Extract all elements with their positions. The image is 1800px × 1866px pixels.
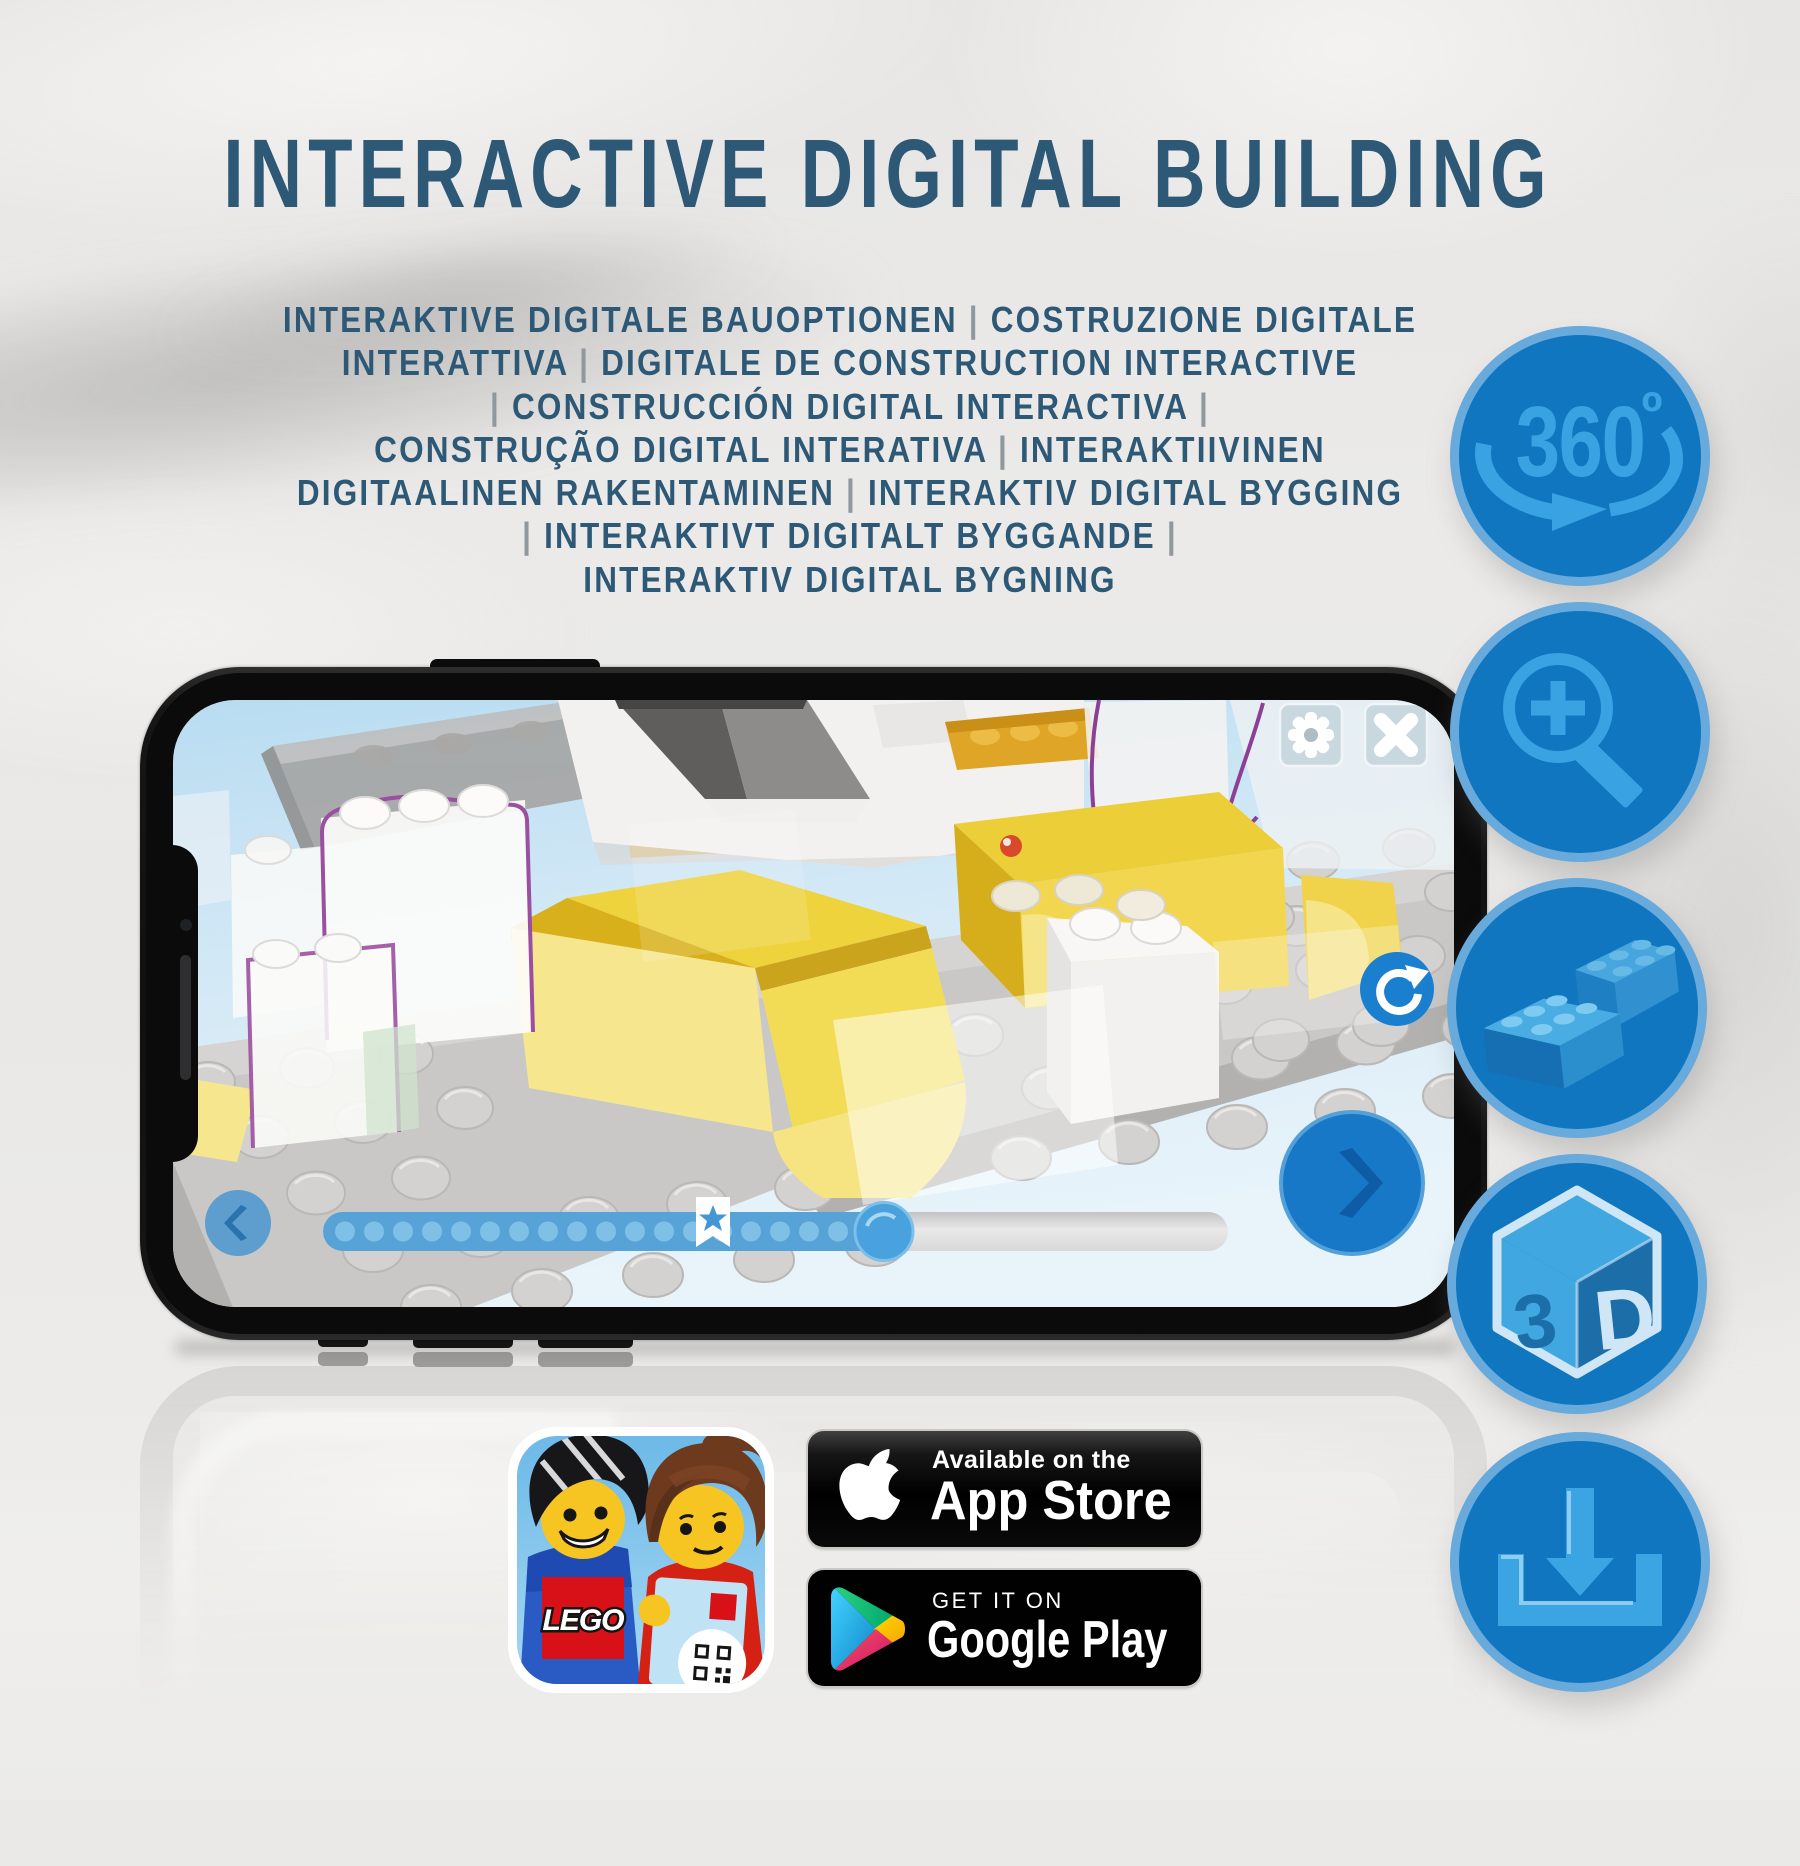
svg-text:LEGO: LEGO	[542, 1604, 624, 1637]
svg-text:D: D	[1590, 1268, 1660, 1368]
svg-text:º: º	[1641, 380, 1662, 445]
svg-text:360: 360	[1516, 387, 1645, 499]
